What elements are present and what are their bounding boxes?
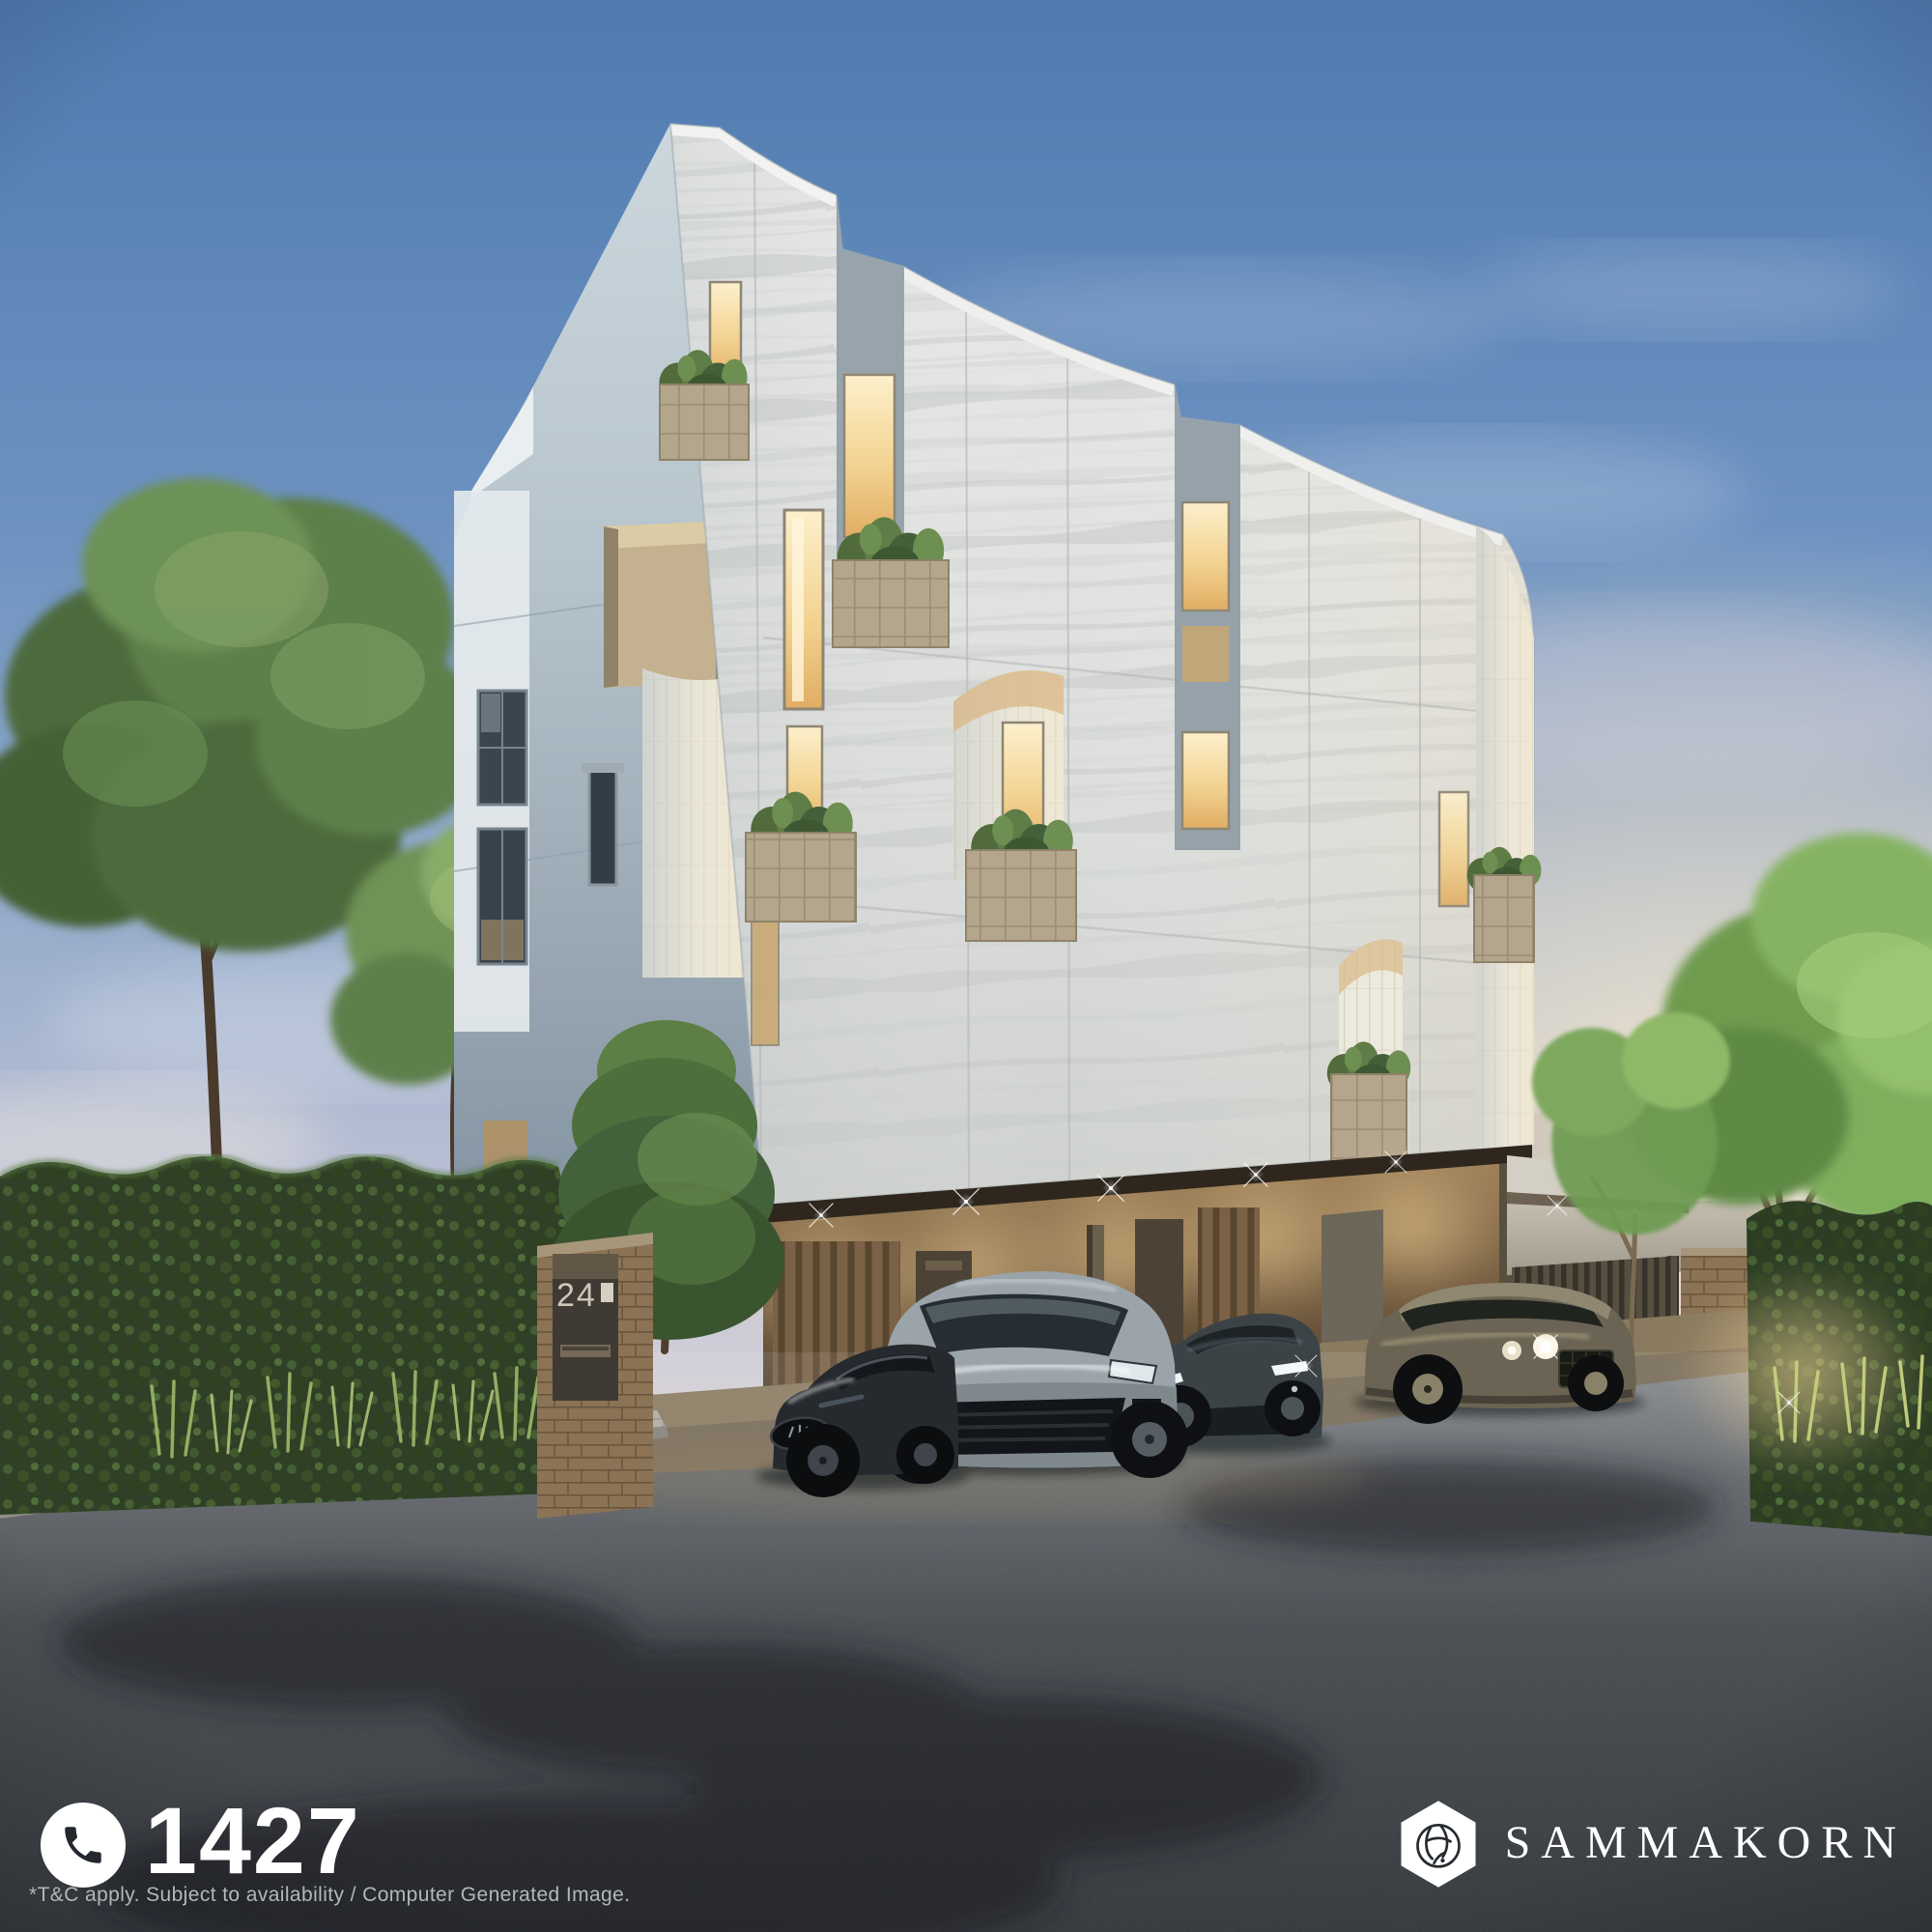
phone-icon bbox=[59, 1821, 107, 1869]
disclaimer-text: *T&C apply. Subject to availability / Co… bbox=[29, 1884, 630, 1907]
phone-number: 1427 bbox=[145, 1793, 361, 1889]
brand-wordmark: SAMMAKORN bbox=[1505, 1816, 1907, 1869]
sammakorn-hexagon-monogram-logo bbox=[1397, 1797, 1480, 1891]
architectural-render-ad: 24 bbox=[0, 0, 1932, 1932]
vignette bbox=[0, 0, 1932, 1932]
phone-badge bbox=[41, 1803, 126, 1888]
scene-artwork: 24 bbox=[0, 0, 1932, 1932]
brand-lockup: SAMMAKORN bbox=[1397, 1797, 1907, 1891]
